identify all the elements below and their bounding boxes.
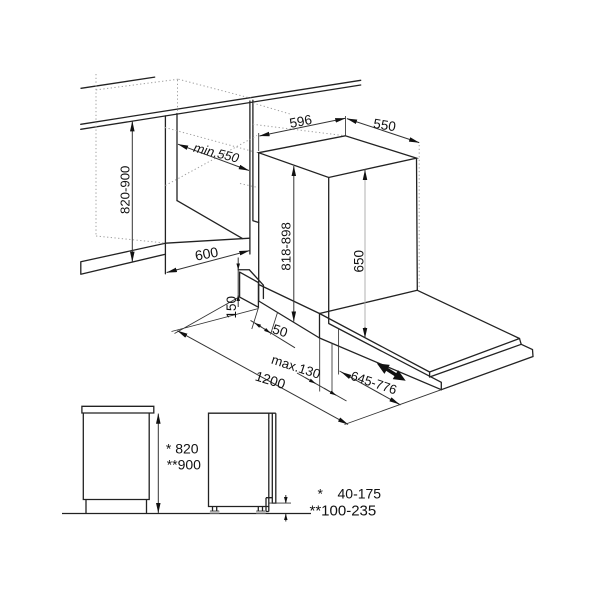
svg-text:600: 600 bbox=[194, 244, 220, 264]
svg-text:50: 50 bbox=[271, 321, 290, 340]
svg-text:596: 596 bbox=[288, 112, 313, 131]
svg-text:1200: 1200 bbox=[253, 369, 287, 392]
svg-text:* 820: * 820 bbox=[166, 440, 199, 456]
svg-text:818-898: 818-898 bbox=[279, 222, 294, 270]
svg-text:650: 650 bbox=[351, 250, 366, 273]
svg-text:150: 150 bbox=[224, 296, 239, 319]
svg-text:**100-235: **100-235 bbox=[310, 503, 377, 520]
svg-text:*: * bbox=[318, 486, 324, 502]
svg-text:**900: **900 bbox=[167, 456, 201, 472]
svg-text:820-900: 820-900 bbox=[117, 166, 132, 214]
svg-text:40-175: 40-175 bbox=[338, 486, 382, 502]
svg-text:550: 550 bbox=[372, 116, 397, 134]
svg-text:min.550: min.550 bbox=[192, 140, 241, 166]
